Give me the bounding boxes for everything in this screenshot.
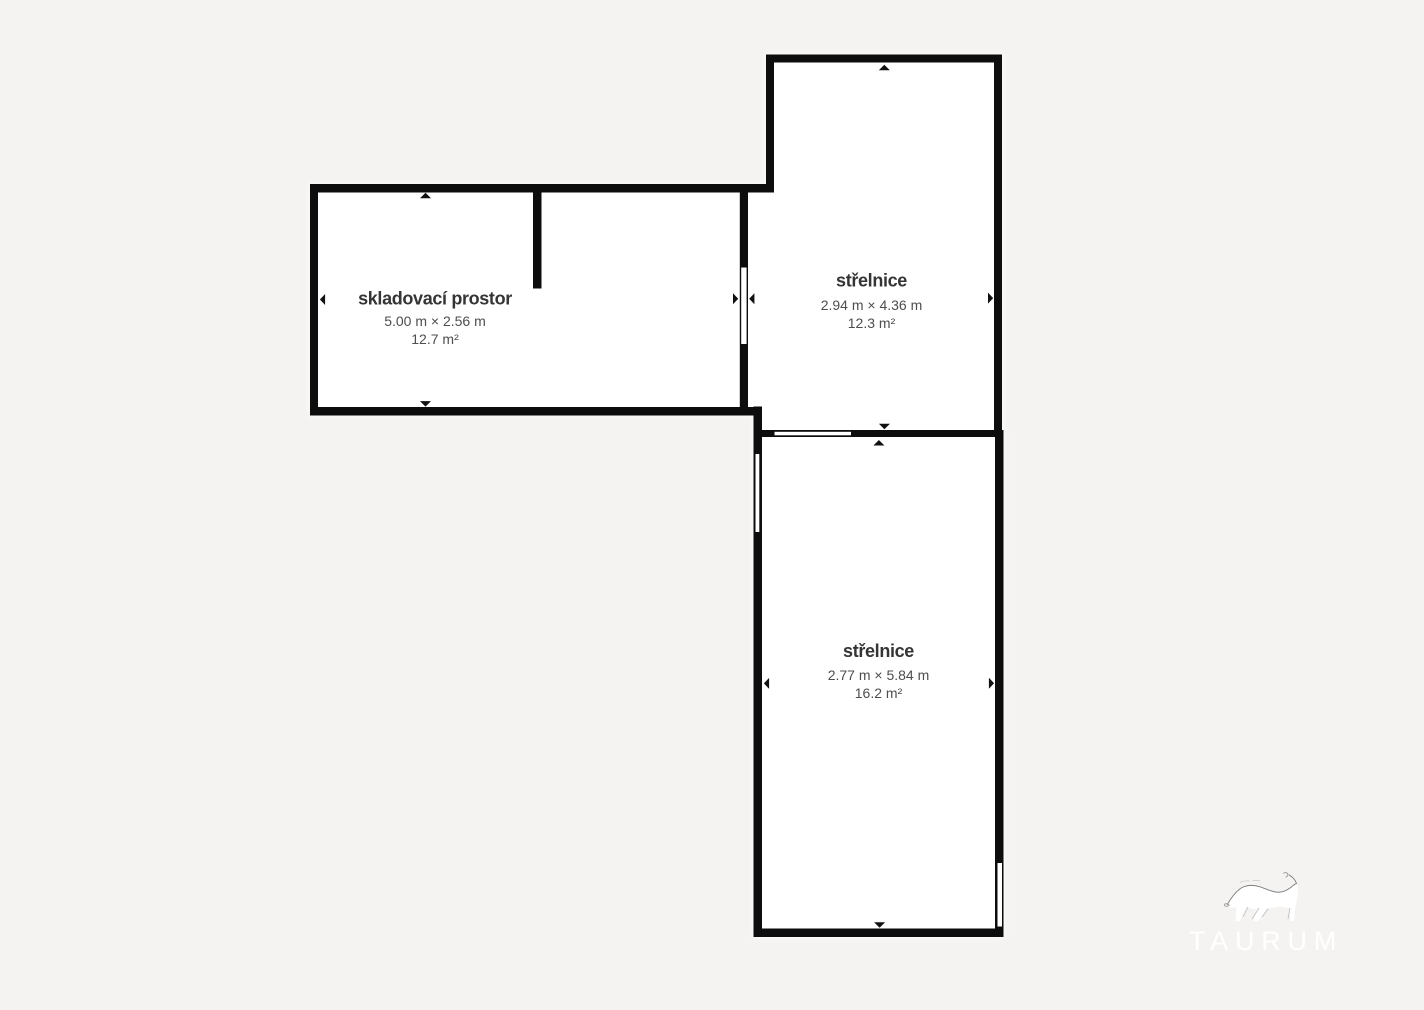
svg-text:skladovací prostor: skladovací prostor	[358, 289, 512, 309]
svg-text:střelnice: střelnice	[843, 641, 914, 661]
svg-text:TAURUM: TAURUM	[1189, 926, 1343, 956]
svg-text:12.7 m²: 12.7 m²	[411, 331, 459, 347]
svg-text:12.3 m²: 12.3 m²	[848, 315, 896, 331]
svg-text:16.2 m²: 16.2 m²	[855, 685, 903, 701]
svg-text:5.00 m × 2.56 m: 5.00 m × 2.56 m	[384, 313, 486, 329]
svg-text:střelnice: střelnice	[836, 271, 907, 291]
svg-text:2.94 m × 4.36 m: 2.94 m × 4.36 m	[821, 297, 923, 313]
svg-text:2.77 m × 5.84 m: 2.77 m × 5.84 m	[828, 667, 930, 683]
